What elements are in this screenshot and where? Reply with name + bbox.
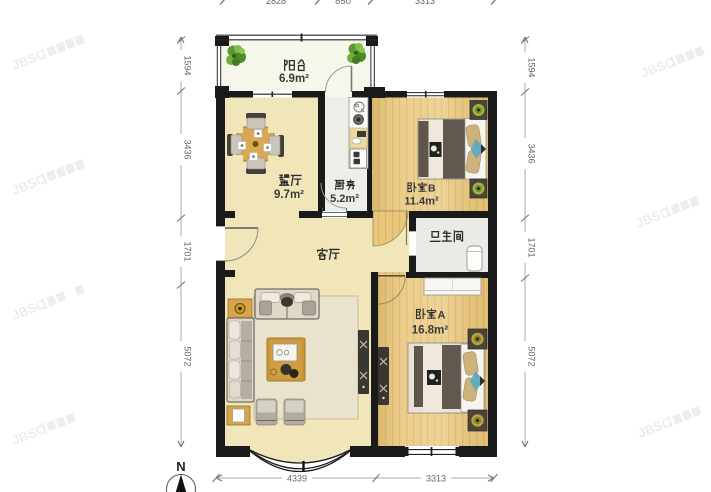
svg-text:3313: 3313 xyxy=(415,0,435,6)
svg-text:B: B xyxy=(428,183,436,195)
svg-text:1594: 1594 xyxy=(527,57,537,77)
svg-text:9.7m²: 9.7m² xyxy=(274,189,304,201)
svg-text:2828: 2828 xyxy=(266,0,286,6)
svg-text:16.8m²: 16.8m² xyxy=(412,325,449,337)
svg-text:3313: 3313 xyxy=(426,474,446,484)
svg-text:A: A xyxy=(438,310,446,322)
svg-text:1701: 1701 xyxy=(527,237,537,257)
svg-text:3436: 3436 xyxy=(183,139,193,159)
svg-text:5.2m²: 5.2m² xyxy=(330,193,359,205)
svg-text:N: N xyxy=(176,459,185,474)
svg-text:11.4m²: 11.4m² xyxy=(404,196,439,208)
svg-text:1594: 1594 xyxy=(183,55,193,75)
svg-text:3436: 3436 xyxy=(527,143,537,163)
svg-text:5072: 5072 xyxy=(527,346,537,366)
svg-text:5072: 5072 xyxy=(183,346,193,366)
svg-text:4339: 4339 xyxy=(287,474,307,484)
svg-text:6.9m²: 6.9m² xyxy=(279,73,309,85)
svg-text:1701: 1701 xyxy=(183,241,193,261)
svg-text:850: 850 xyxy=(335,0,351,7)
